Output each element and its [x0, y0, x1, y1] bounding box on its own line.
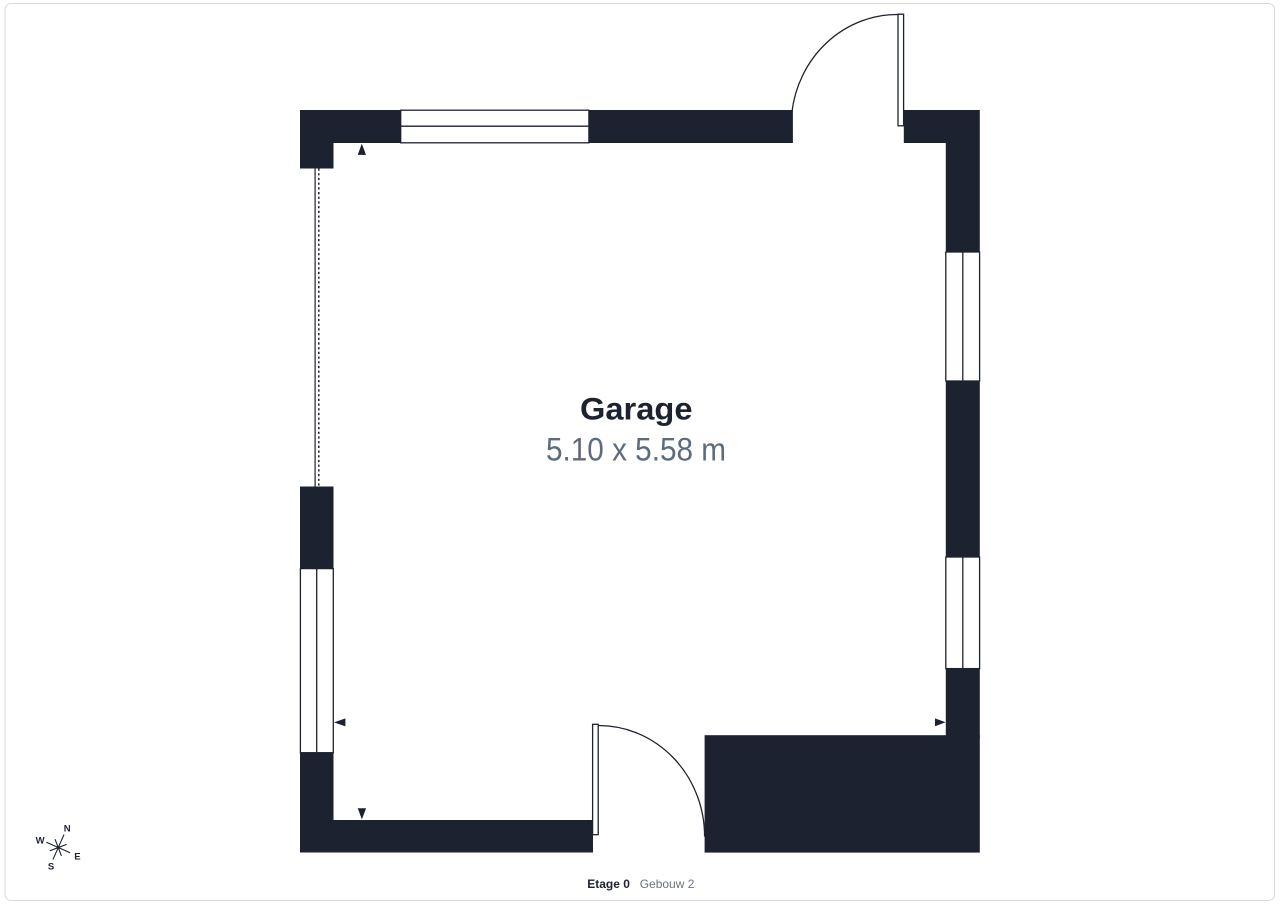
svg-text:Gebouw 2: Gebouw 2	[640, 877, 695, 891]
svg-text:Garage: Garage	[580, 391, 693, 427]
svg-text:S: S	[48, 862, 54, 873]
svg-text:E: E	[74, 852, 80, 863]
svg-text:5.10 x 5.58 m: 5.10 x 5.58 m	[546, 432, 726, 468]
svg-text:N: N	[64, 824, 71, 835]
svg-text:Etage 0: Etage 0	[587, 877, 630, 891]
svg-text:W: W	[36, 836, 45, 847]
